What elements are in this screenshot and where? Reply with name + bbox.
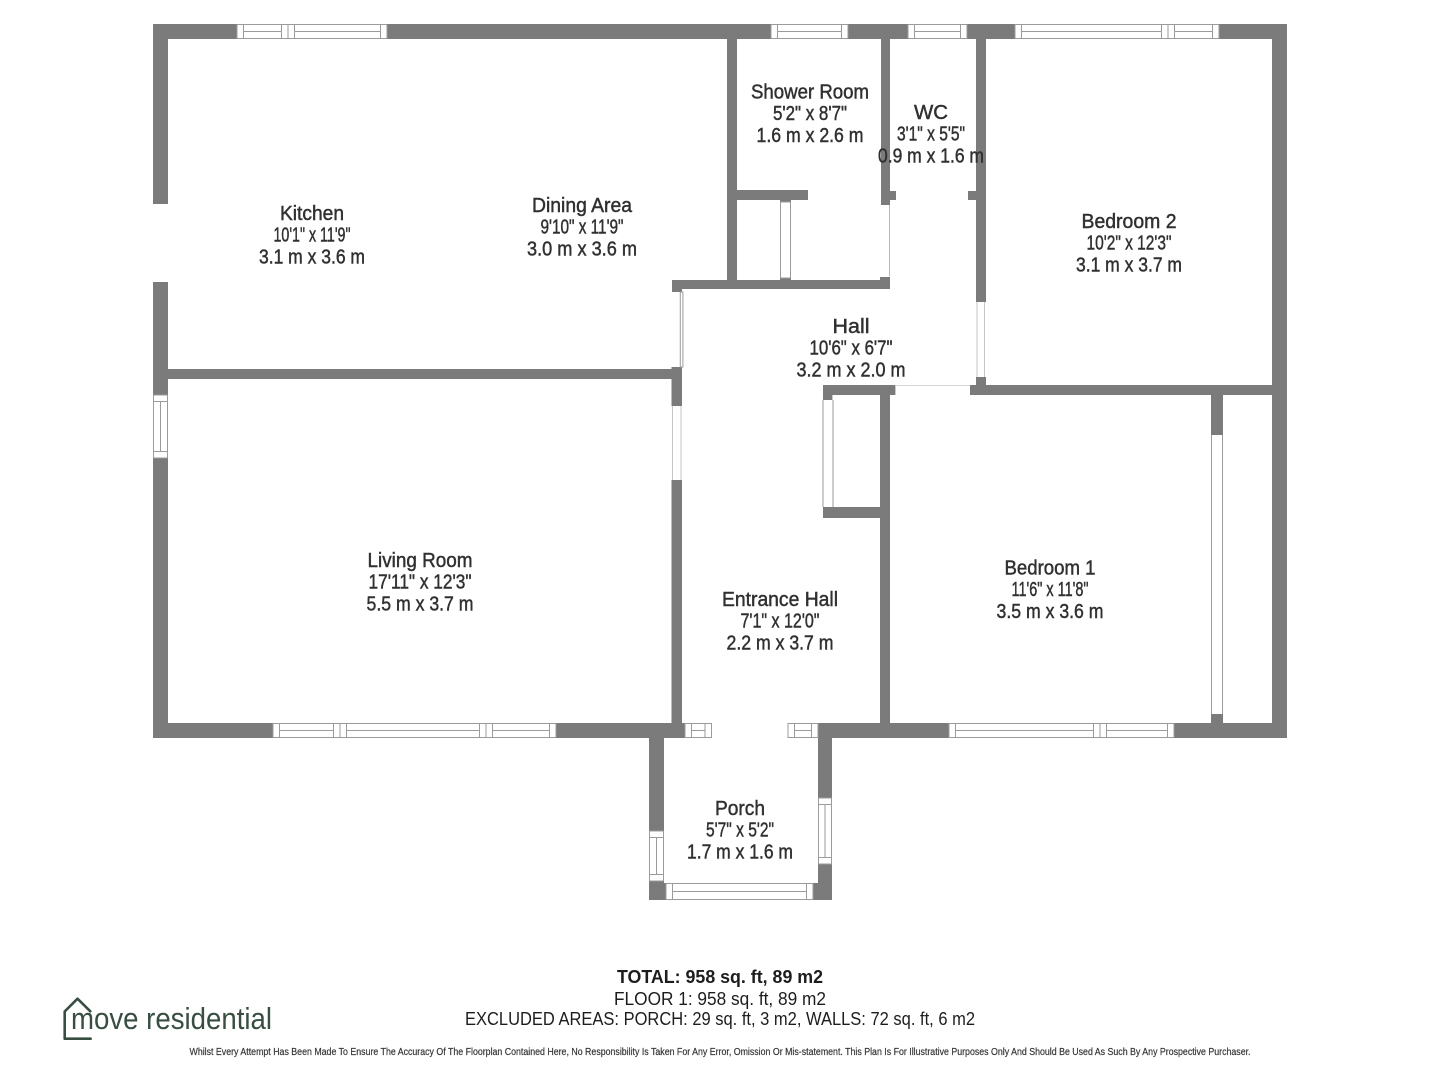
svg-text:2.2 m x 3.7 m: 2.2 m x 3.7 m [727,632,834,654]
svg-text:Bedroom 2: Bedroom 2 [1082,211,1177,233]
svg-text:1.6 m x 2.6 m: 1.6 m x 2.6 m [757,125,864,147]
svg-text:5'7" x 5'2": 5'7" x 5'2" [706,820,774,842]
svg-text:5'2" x 8'7": 5'2" x 8'7" [773,103,847,125]
svg-text:Whilst Every Attempt Has Been: Whilst Every Attempt Has Been Made To En… [190,1047,1251,1058]
svg-text:3.5 m x 3.6 m: 3.5 m x 3.6 m [997,601,1104,623]
svg-text:17'11" x 12'3": 17'11" x 12'3" [369,572,472,594]
svg-text:10'1" x 11'9": 10'1" x 11'9" [274,225,351,247]
svg-text:9'10" x 11'9": 9'10" x 11'9" [541,217,624,239]
svg-text:Porch: Porch [715,798,765,820]
svg-text:Entrance Hall: Entrance Hall [722,589,838,611]
svg-text:3.2 m x 2.0 m: 3.2 m x 2.0 m [797,359,906,381]
svg-text:3.0 m x 3.6 m: 3.0 m x 3.6 m [527,238,637,260]
svg-text:10'6" x 6'7": 10'6" x 6'7" [810,338,893,360]
svg-text:3.1 m x 3.6 m: 3.1 m x 3.6 m [259,246,365,268]
svg-text:WC: WC [914,102,948,124]
svg-text:Living Room: Living Room [368,550,473,572]
svg-text:TOTAL: 958 sq. ft, 89 m2: TOTAL: 958 sq. ft, 89 m2 [617,967,823,987]
svg-text:Bedroom 1: Bedroom 1 [1005,558,1096,580]
svg-text:Kitchen: Kitchen [280,203,344,225]
svg-text:10'2" x 12'3": 10'2" x 12'3" [1087,233,1172,255]
svg-text:1.7 m x 1.6 m: 1.7 m x 1.6 m [687,841,793,863]
svg-text:0.9 m x 1.6 m: 0.9 m x 1.6 m [878,145,984,167]
svg-text:Hall: Hall [833,316,870,338]
svg-text:FLOOR 1: 958 sq. ft, 89 m2: FLOOR 1: 958 sq. ft, 89 m2 [614,989,826,1009]
svg-text:3.1 m x 3.7 m: 3.1 m x 3.7 m [1076,254,1182,276]
svg-text:EXCLUDED AREAS: PORCH: 29 sq.: EXCLUDED AREAS: PORCH: 29 sq. ft, 3 m2, … [465,1009,975,1029]
svg-text:move residential: move residential [71,1001,272,1036]
svg-text:5.5 m x 3.7 m: 5.5 m x 3.7 m [367,593,474,615]
svg-text:Shower Room: Shower Room [751,82,869,104]
svg-text:3'1" x 5'5": 3'1" x 5'5" [897,124,965,146]
svg-text:Dining Area: Dining Area [532,195,633,217]
svg-text:7'1" x 12'0": 7'1" x 12'0" [741,611,820,633]
svg-text:11'6" x 11'8": 11'6" x 11'8" [1012,579,1089,601]
